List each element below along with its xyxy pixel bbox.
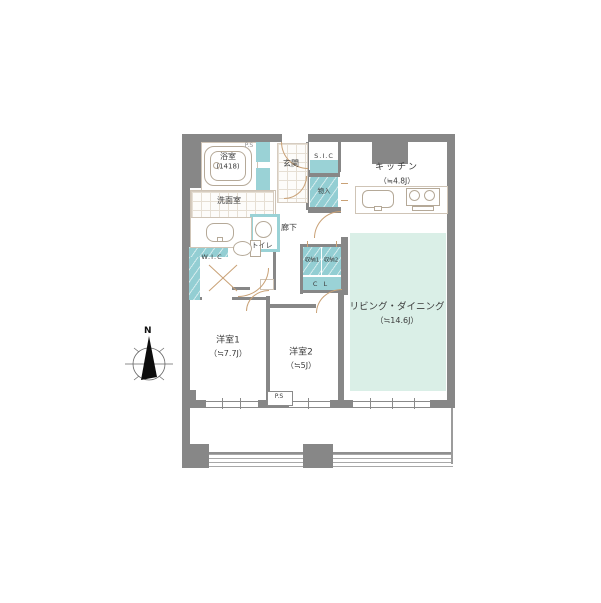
- storage-door-tick: [341, 183, 348, 184]
- closet-door-tick: [336, 241, 337, 247]
- entrance-label: 玄関: [283, 160, 299, 168]
- washer-icon: [255, 221, 272, 238]
- wall: [270, 304, 316, 308]
- powder-room-label: 洗面室: [217, 197, 241, 205]
- toilet-label: トイレ: [252, 243, 273, 250]
- closet-door-tick: [307, 241, 308, 247]
- wall: [447, 134, 455, 408]
- wall: [330, 400, 353, 408]
- stove-handle: [412, 206, 434, 211]
- pipe-space-top-label: P.S: [245, 143, 253, 149]
- stove-burner-icon: [424, 190, 435, 201]
- toilet-icon: [233, 241, 252, 256]
- floor-plan: N 浴室 (1418) P.S 洗面室 玄関 S.I.C 物入 キッチン （≒4…: [0, 0, 601, 603]
- balcony-pillar: [303, 444, 333, 468]
- faucet-icon: [217, 237, 223, 242]
- stove-burner-icon: [409, 190, 420, 201]
- pillar: [372, 134, 408, 164]
- living-door: [314, 211, 341, 238]
- living-dining-size-label: （≒14.6J）: [376, 317, 419, 325]
- wall: [308, 134, 372, 142]
- bath-wall-panel: [256, 142, 270, 162]
- storage-label: 物入: [318, 188, 331, 195]
- kitchen-size-label: （≒4.8J）: [379, 177, 414, 185]
- cl-closet-label: C L: [313, 281, 329, 288]
- window-mullion: [308, 398, 309, 409]
- shoe-closet-label: S.I.C: [314, 153, 334, 160]
- compass-north: N: [144, 326, 152, 336]
- window: [289, 401, 330, 408]
- wall: [266, 296, 270, 400]
- compass-icon: N: [122, 322, 176, 392]
- shoe-closet-floor: [310, 160, 338, 173]
- wall: [338, 142, 341, 172]
- storage-door-tick: [341, 200, 348, 201]
- wall: [430, 400, 455, 408]
- closet1-label: 収納1: [305, 258, 320, 264]
- bedroom1-size-label: （≒7.7J）: [209, 350, 247, 358]
- wall: [182, 400, 206, 408]
- window-mullion: [240, 398, 241, 409]
- window-mullion: [222, 398, 223, 409]
- bedroom2-size-label: （≒5J）: [286, 362, 316, 370]
- wall: [182, 134, 190, 468]
- balcony-edge: [451, 408, 453, 464]
- wic-door: [208, 264, 238, 292]
- hallway-label: 廊下: [281, 224, 297, 232]
- balcony-pillar: [182, 444, 209, 468]
- kitchen-label: キッチン: [375, 164, 419, 173]
- bedroom2-label: 洋室2: [289, 349, 313, 358]
- faucet-icon: [374, 206, 382, 211]
- wall: [341, 237, 348, 295]
- window-mullion: [392, 398, 393, 409]
- wic-wall: [189, 257, 200, 300]
- window-mullion: [414, 398, 415, 409]
- window: [206, 401, 258, 408]
- living-dining-label: リビング・ダイニング: [349, 302, 444, 312]
- bath-size-label: (1418): [216, 164, 239, 171]
- bath-wall-panel: [256, 168, 270, 190]
- bath-label: 浴室: [220, 153, 236, 161]
- pipe-space-label: P.S: [275, 394, 283, 400]
- closet2-label: 収納2: [324, 258, 339, 264]
- window-mullion: [370, 398, 371, 409]
- bedroom1-label: 洋室1: [216, 337, 240, 346]
- wic-label: W.I.C: [201, 254, 222, 261]
